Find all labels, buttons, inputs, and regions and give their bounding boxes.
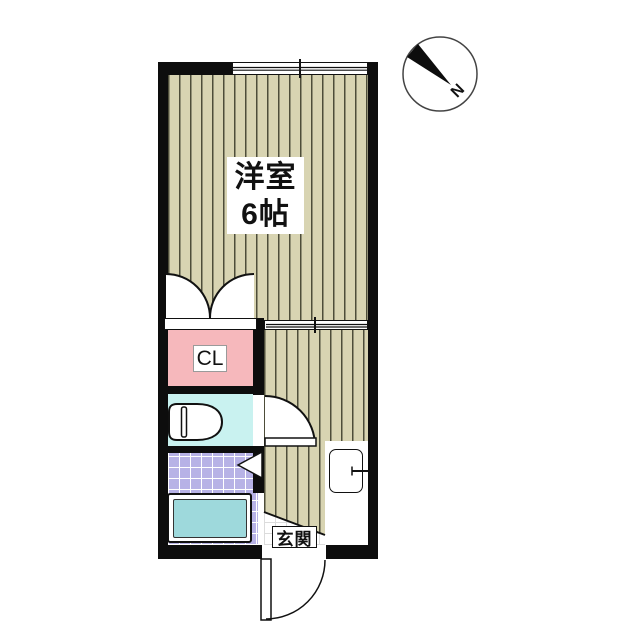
cabinet-handle-icon — [352, 467, 368, 476]
bath-door-notch-icon — [238, 452, 262, 478]
main-room-name: 洋室 — [235, 159, 297, 196]
main-room-size: 6帖 — [241, 196, 290, 233]
entrance-label: 玄関 — [272, 526, 317, 548]
closet-label: CL — [193, 345, 227, 372]
closet-label-text: CL — [197, 347, 224, 371]
north-compass-icon: N — [403, 37, 477, 111]
entrance-label-text: 玄関 — [277, 525, 313, 550]
front-door-icon — [261, 559, 325, 620]
hall-door-icon — [265, 396, 316, 446]
toilet-icon — [169, 404, 222, 440]
plan-overlay: N — [0, 0, 640, 640]
floor-plan: N 洋室 6帖 CL 玄関 — [0, 0, 640, 640]
double-door-icon — [166, 274, 254, 318]
main-room-label: 洋室 6帖 — [227, 157, 304, 234]
